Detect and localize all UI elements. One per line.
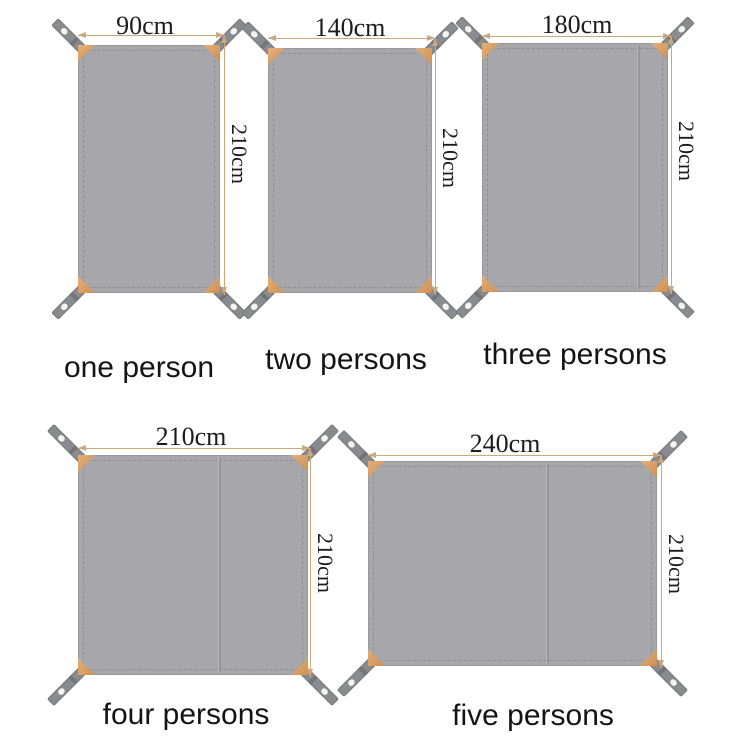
tarp-size-chart: 90cm 210cm one person 140cm 210cm two pe… <box>0 0 750 750</box>
arrowhead-icon <box>432 38 438 46</box>
strap-grommet-icon <box>60 302 69 311</box>
strap-band <box>473 291 483 301</box>
stitch-line <box>83 460 303 670</box>
strap-grommet-icon <box>677 25 686 34</box>
caption-four-persons: four persons <box>103 698 270 732</box>
tarp-fabric <box>268 48 432 293</box>
strap-grommet-icon <box>464 25 473 34</box>
height-dimension-label: 210cm <box>314 533 336 593</box>
strap-band <box>69 292 79 302</box>
strap-grommet-icon <box>669 440 678 449</box>
strap-band <box>358 451 368 461</box>
arrowhead-icon <box>78 445 86 451</box>
arrowhead-icon <box>78 32 86 38</box>
tarp-fabric <box>482 43 668 292</box>
strap-grommet-icon <box>677 301 686 310</box>
strap-band <box>68 675 78 685</box>
strap-grommet-icon <box>57 687 66 696</box>
strap-band <box>68 445 78 455</box>
arrowhead-icon <box>221 287 227 295</box>
strap-grommet-icon <box>60 27 69 36</box>
arrowhead-icon <box>658 455 664 463</box>
stitch-line <box>83 50 215 288</box>
fold-seam-line <box>638 46 640 289</box>
height-dimension-line <box>310 448 311 677</box>
strap-grommet-icon <box>347 678 356 687</box>
strap-grommet-icon <box>441 30 450 39</box>
strap-grommet-icon <box>347 440 356 449</box>
arrowhead-icon <box>432 287 438 295</box>
strap-grommet-icon <box>320 434 329 443</box>
strap-grommet-icon <box>464 301 473 310</box>
strap-band <box>259 292 269 302</box>
caption-two-persons: two persons <box>265 343 427 377</box>
height-dimension-line <box>671 36 672 294</box>
width-dimension-label: 140cm <box>315 15 386 41</box>
height-dimension-label: 210cm <box>665 534 687 594</box>
strap-grommet-icon <box>57 434 66 443</box>
tarp-fabric <box>78 455 308 675</box>
fold-seam-line <box>547 464 549 663</box>
stitch-line <box>487 48 663 287</box>
caption-one-person: one person <box>64 351 214 385</box>
height-dimension-label: 210cm <box>675 121 697 181</box>
arrowhead-icon <box>368 452 376 458</box>
stitch-line <box>373 466 652 661</box>
height-dimension-label: 210cm <box>439 128 461 188</box>
arrowhead-icon <box>668 36 674 44</box>
arrowhead-icon <box>658 660 664 668</box>
strap-grommet-icon <box>250 30 259 39</box>
caption-three-persons: three persons <box>483 338 666 372</box>
strap-grommet-icon <box>320 687 329 696</box>
strap-band <box>358 666 368 676</box>
strap-grommet-icon <box>250 302 259 311</box>
tarp-fabric <box>368 461 657 666</box>
tarp-fabric <box>78 45 220 293</box>
stitch-line <box>273 53 427 288</box>
height-dimension-line <box>661 455 662 668</box>
width-dimension-label: 240cm <box>470 431 541 457</box>
arrowhead-icon <box>268 35 276 41</box>
width-dimension-label: 90cm <box>116 13 174 39</box>
arrowhead-icon <box>668 286 674 294</box>
strap-grommet-icon <box>441 302 450 311</box>
height-dimension-label: 210cm <box>228 124 250 184</box>
width-dimension-label: 210cm <box>156 424 227 450</box>
arrowhead-icon <box>307 448 313 456</box>
arrowhead-icon <box>307 669 313 677</box>
strap-grommet-icon <box>669 678 678 687</box>
arrowhead-icon <box>482 33 490 39</box>
strap-grommet-icon <box>229 27 238 36</box>
arrowhead-icon <box>221 35 227 43</box>
height-dimension-line <box>224 35 225 295</box>
strap-grommet-icon <box>229 302 238 311</box>
width-dimension-label: 180cm <box>542 12 613 38</box>
fold-seam-line <box>219 458 221 672</box>
height-dimension-line <box>435 38 436 295</box>
caption-five-persons: five persons <box>452 699 614 733</box>
